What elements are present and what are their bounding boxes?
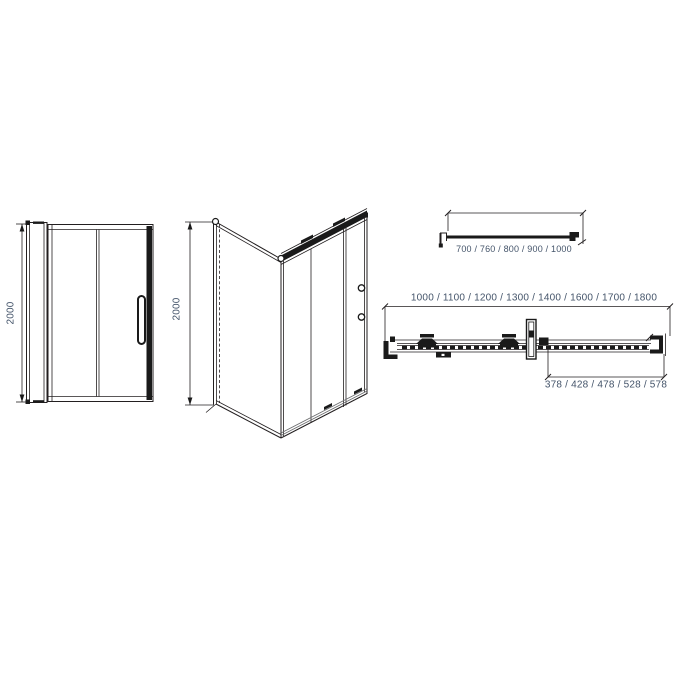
handle-connector <box>539 338 549 346</box>
top-track <box>281 211 367 263</box>
roller-carriage <box>498 334 520 348</box>
front-sliding-stile <box>147 226 153 400</box>
arrow-up-icon <box>20 224 25 232</box>
corner-knob-icon <box>278 256 284 262</box>
technical-drawing-canvas: 2000 2000 700 / 760 / 800 / 900 / 1000 1… <box>0 0 693 689</box>
front-height-dimension-line <box>16 224 27 402</box>
side-panel-glass <box>446 236 576 239</box>
perspective-view <box>185 209 368 439</box>
bottom-guide <box>436 352 451 358</box>
corner-knob-icon <box>213 219 219 225</box>
side-panel-width-options: 700 / 760 / 800 / 900 / 1000 <box>456 244 572 254</box>
arrow-down-icon <box>20 395 25 403</box>
roller-carriage <box>416 334 438 348</box>
technical-drawing-svg <box>0 0 693 689</box>
door-sliding-section-widths: 378 / 428 / 478 / 528 / 578 <box>545 380 667 391</box>
front-side-panel-edge <box>26 221 48 405</box>
door-width-options: 1000 / 1100 / 1200 / 1300 / 1400 / 1600 … <box>411 293 657 304</box>
handle-knob-icon <box>358 285 364 291</box>
wall-profile <box>439 233 447 248</box>
perspective-side-panel <box>206 222 281 438</box>
arrow-up-icon <box>188 222 193 230</box>
side-panel-width-dimension-line <box>445 210 586 244</box>
sliding-section-dimension-line <box>545 346 667 380</box>
handle-knob-icon <box>358 314 364 320</box>
door-handle-plan <box>527 320 537 360</box>
perspective-sliding-door <box>213 209 369 439</box>
perspective-height-dimension: 2000 <box>172 297 183 320</box>
end-bracket <box>646 334 666 357</box>
front-height-dimension: 2000 <box>6 301 17 324</box>
front-door-frame <box>48 225 153 402</box>
front-elevation-view <box>16 221 153 405</box>
front-door-handle <box>138 296 145 344</box>
arrow-down-icon <box>188 398 193 406</box>
door-plan-view <box>382 304 673 381</box>
end-bracket <box>570 232 587 245</box>
perspective-height-dimension-line <box>185 222 214 405</box>
side-panel-plan-view <box>439 210 586 248</box>
